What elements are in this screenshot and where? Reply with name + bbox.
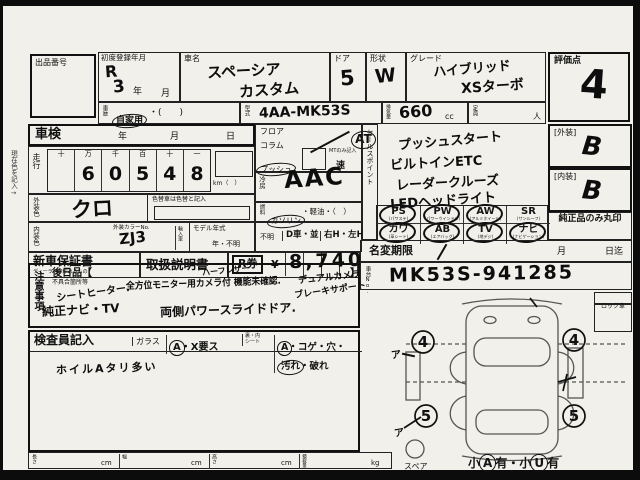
glass-option-a: A [173,342,181,354]
summary-tail: 有 [547,456,559,470]
left-rear-slash-mark [404,417,421,428]
load-unit: kg [371,459,380,467]
meter-mark-box [215,151,253,177]
width-unit: cm [191,459,202,467]
shaken-month: 月 [170,132,179,142]
color-change-entry [154,206,250,220]
capacity-unit: 人 [533,112,541,121]
seat-option-rest: ・破れ [300,361,329,372]
interior-color-label: 内装色 [32,226,39,250]
mileage-header: 一 [184,150,210,159]
shaken-label: 車検 [35,128,61,143]
length-unit: cm [101,459,112,467]
car-name-box: 車名 スペーシア カスタム [180,52,330,102]
right-headlight [528,317,540,324]
model-code-value: 4AA-MK53S [259,102,351,121]
exterior-rating-box: [外装] B [548,124,632,168]
ac-label: 冷房 [258,176,265,200]
chassis-value: MK53S-941285 [389,261,574,286]
summary-mid: 有・小 [495,456,531,470]
interior-color-row: 内装色 外装カラーNo. ZJ3 輸入車 モデル年式 年・不明 [28,222,255,252]
displacement-label: 排気量 [385,104,390,124]
first-registration-box: 初度登録年月 R 3 年 月 [98,52,180,102]
right-side-strip [568,348,583,398]
score-value: 4 [578,61,609,109]
genuine-parts-note: 純正品のみ丸印 [549,213,631,226]
fuel-rest: ・軽油・（ ） [302,208,351,217]
ac-row: 冷房 AAC [255,172,362,202]
mileage-digit: 0 [102,159,128,189]
mileage-cell: 万6 [74,150,101,191]
width-label: 幅 [119,454,126,469]
interior-rating-value: B [581,175,603,207]
mileage-row: 走行 十 万6 千0 百5 十4 一8 km（ ） [28,146,255,194]
grade-box: グレード ハイブリッド XSターボ [406,52,546,102]
import-label: 輸入車 [175,226,182,250]
displacement-box: 排気量 660 cc [382,102,468,124]
equipment-code: PW [421,206,464,217]
left-front-fender [450,352,466,384]
height-unit: cm [281,459,292,467]
interior-rating-label: [内装] [554,172,576,181]
exterior-rating-label: [外装] [554,128,576,137]
sales-point-area: プッシュスタート ビルトインETC レーダークルーズ LEDヘッドライト [378,124,548,206]
mileage-digit: 8 [184,159,210,189]
equipment-code: SR [507,206,550,217]
mileage-cell: 千0 [101,150,128,191]
seat-label-line2: シート [245,340,272,346]
genuine-parts-note-box: 純正品のみ丸印 [548,212,632,240]
mt-note: MTのみ記入 [329,149,359,155]
mileage-digit: 6 [75,159,101,189]
shaken-day: 日 [226,132,235,142]
history-rest: ・( ) [149,108,183,118]
shift-floor: フロア [260,127,284,136]
model-code-label: 型式 [243,105,249,123]
capacity-label: 定員 [471,105,477,123]
equipment-code: TV [464,224,507,235]
exterior-rating-value: B [580,131,603,163]
note-camera: 全方位モニター用カメラ付 機能未確認. [126,273,281,292]
car-name-line2: カスタム [238,77,299,102]
chassis-label: 車台No. [364,266,380,292]
inspector-header: 検査員記入 ガラス A・X要ス 裏・内シート A・コゲ・穴・汚れ・破れ [30,332,362,352]
glass-options: A・X要ス [166,335,218,354]
mileage-label: 走行 [32,153,40,189]
car-top-view-diagram: 4 4 5 5 [402,294,634,466]
spare-label: スペア [404,462,427,471]
wheel-mark-rear-left: 5 [421,407,431,425]
ac-value: AAC [283,162,346,194]
note-navi-tv: 純正ナビ・TV [42,299,120,320]
seat-option-mid: ・コゲ・穴・ [288,342,345,353]
mileage-header: 百 [130,150,156,159]
reg-year-value: 3 [112,76,126,97]
front-bumper-line [462,299,562,304]
color-change-note: 色替車は色替と記入 [152,197,206,204]
shaken-year: 年 [118,132,127,142]
door-label: ドア [331,53,365,64]
inspector-note-wheel: ホイルAタリ多い [56,358,158,378]
exterior-color-label: 外装色 [32,197,39,221]
margin-note: 現在色を記入→ [10,150,17,240]
name-change-slash-mark [437,244,448,261]
mileage-cell: 一8 [183,150,210,191]
notes-label: 注意事項 [32,271,42,325]
seat-label: 裏・内シート [242,334,272,346]
name-change-label: 名変期限 [369,245,413,258]
mileage-cell: 十 [48,150,74,191]
name-change-until: 日迄 [605,247,623,257]
lot-number-label: 出品番号 [32,56,94,69]
shaken-header: 車検 年 月 日 [28,124,255,146]
equipment-grid: PS(パワステ) PW(パワーウインドウ) AW(アルミホイール) SR(サンル… [376,205,548,241]
equipment-code: AB [421,224,464,235]
scan-edge-bottom [0,470,640,480]
score-box: 評価点 4 [548,52,630,122]
grade-line2: XSターボ [460,74,524,98]
color-no-value: ZJ3 [118,228,147,249]
summary-dent-code: U [534,456,544,470]
seat-options: A・コゲ・穴・汚れ・破れ [274,335,362,373]
rear-window [476,410,548,434]
wheel-mark-front-right: 4 [569,331,579,349]
wheel-mark-rear-right: 5 [569,407,579,425]
scan-edge-left [0,0,3,480]
fuel-row: 燃料 ガソリン ・軽油・（ ） [255,202,362,222]
history-box: 車歴 自家用 ・( ) [98,102,240,124]
reg-month-suffix: 月 [161,89,170,99]
origin-unknown: 不明 [260,233,274,241]
chassis-row: 車台No. MK53S-941285 [360,262,632,290]
windshield [474,338,550,366]
mileage-digit: 5 [130,159,156,189]
sales-line-1: プッシュスタート [397,126,502,154]
displacement-unit: cc [445,112,454,121]
origin-dcar: D車・並 [282,231,319,241]
interior-rating-box: [内装] B [548,168,632,212]
wheel-mark-front-left: 4 [418,333,428,351]
door-value: 5 [339,65,356,90]
sales-point-label: セールスポイント [366,129,373,237]
exterior-color-value: クロ [70,192,114,224]
lot-number-box: 出品番号 [30,54,96,118]
left-side-strip [406,352,420,400]
exterior-color-row: 外装色 クロ 色替車は色替と記入 [28,194,255,222]
inspector-block: 検査員記入 ガラス A・X要ス 裏・内シート A・コゲ・穴・汚れ・破れ ホイルA… [28,330,360,452]
load-label: 積載量 [299,454,306,469]
equipment-code: PS [377,206,420,217]
shape-value: W [374,64,397,88]
note-power-slide-door: 両側パワースライドドア. [160,299,296,321]
origin-row: 不明 D車・並 右H・左H [255,222,362,252]
equipment-code: ナビ [507,224,550,235]
later-items-label: 後日品【 [52,268,92,280]
height-label: 高さ [209,454,216,469]
length-label: 長さ [31,454,36,469]
equipment-code: カワ [377,224,420,235]
scan-edge-top [0,0,640,6]
dimensions-row: 長さ cm 幅 cm 高さ cm 積載量 kg [28,452,392,469]
model-year-box: モデル年式 年・不明 [189,223,256,253]
name-change-month: 月 [557,247,566,257]
name-change-row: 名変期限 月 日迄 [360,240,632,262]
mileage-grid: 十 万6 千0 百5 十4 一8 [47,149,211,192]
km-label: km（ ） [213,181,240,188]
mileage-digit: 4 [157,159,183,189]
chassis-label-text: 車台No. [364,266,370,288]
seat-option-a: A [281,343,288,354]
capacity-box: 定員 人 [468,102,546,124]
mileage-cell: 十4 [156,150,183,191]
left-headlight [484,317,496,324]
shift-column: コラム [260,141,284,150]
door-box: ドア 5 [330,52,366,102]
summary-scratch-code: A [483,456,492,470]
notes-block: 注意事項 後日品【 】 ハーフレザー 不具合箇所等 シートヒーター. 全方位モニ… [28,263,360,328]
damage-mark-front-left: ア [390,345,402,361]
left-rear-fender [450,396,466,430]
model-year-label: モデル年式 [193,225,226,232]
mileage-header: 十 [48,150,74,159]
damage-summary-note: 小A有・小U有 [468,454,559,471]
seat-option-dirt: 汚れ [281,362,300,373]
history-label: 車歴 [101,105,107,123]
reg-year-suffix: 年 [133,87,142,97]
mileage-header: 十 [157,150,183,159]
color-change-box: 色替車は色替と記入 [147,195,256,223]
glass-option-rest: ・X要ス [181,342,219,353]
model-code-box: 型式 4AA-MK53S [240,102,382,124]
origin-handle: 右H・左H [320,231,364,241]
auction-sheet: 現在色を記入→ 出品番号 初度登録年月 R 3 年 月 車名 スペーシア カスタ… [0,0,640,480]
shape-box: 形状 W [366,52,406,102]
mileage-cell: 百5 [129,150,156,191]
model-year-value: 年・不明 [212,240,240,248]
spare-tire-circle [406,440,424,458]
fuel-label: 燃料 [258,204,264,222]
mileage-header: 万 [75,150,101,159]
mileage-header: 千 [102,150,128,159]
equipment-code: AW [464,206,507,217]
shape-label: 形状 [367,53,405,64]
inspector-title: 検査員記入 [34,334,94,348]
displacement-value: 660 [398,101,433,122]
scan-edge-right [633,0,640,480]
glass-label: ガラス [132,337,163,346]
